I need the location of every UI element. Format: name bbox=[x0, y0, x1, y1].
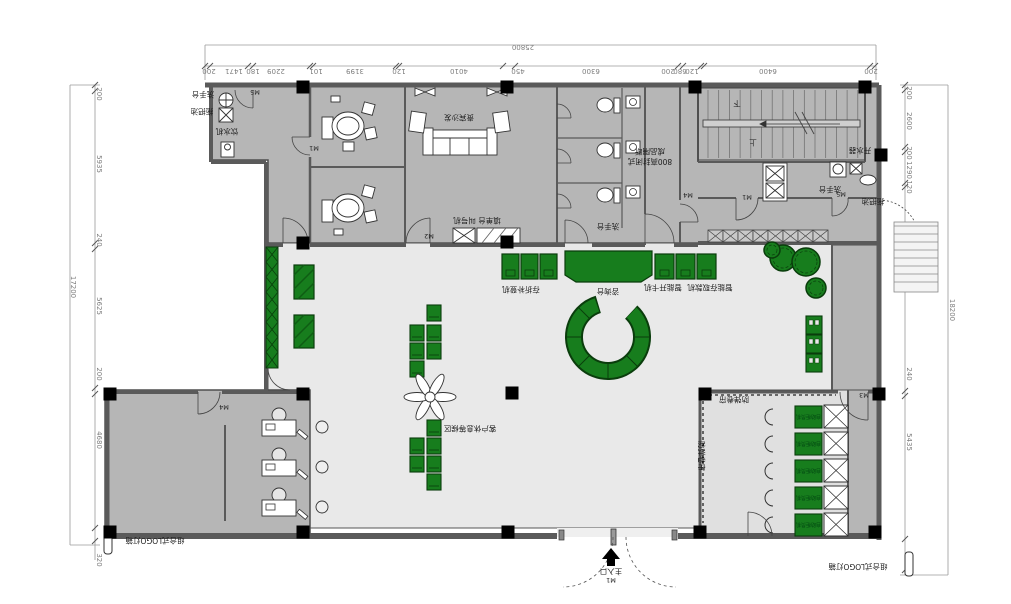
toilet-tank bbox=[614, 188, 620, 203]
dim-label: 4010 bbox=[450, 67, 468, 75]
dim-label: 101 bbox=[309, 67, 322, 75]
label-logo-right: 组合式LOGO灯箱 bbox=[828, 562, 888, 572]
exterior-stair bbox=[894, 222, 938, 292]
wall-machine bbox=[806, 354, 822, 372]
customer-stool bbox=[316, 461, 328, 473]
dim-label: 320 bbox=[95, 553, 103, 566]
service-counter bbox=[565, 251, 652, 282]
label-atm: 自助柜员机 bbox=[796, 521, 821, 528]
label-shutter-left: 防弹卷帘 bbox=[697, 441, 707, 471]
lattice-window bbox=[708, 230, 828, 242]
label-mop-pool-tl: 拖把池 bbox=[190, 107, 213, 117]
passbook-machines bbox=[502, 254, 557, 279]
logo-lightbox-icon bbox=[905, 552, 913, 576]
main-entrance bbox=[559, 529, 677, 587]
toilet-tank bbox=[614, 143, 620, 158]
column bbox=[506, 387, 519, 400]
right-wall-machines bbox=[806, 316, 822, 372]
dim-total-right: 18200 bbox=[948, 299, 956, 321]
door-tag-M1: M1 bbox=[606, 576, 616, 584]
smart-machine bbox=[676, 254, 695, 279]
label-passbook: 存折补登机 bbox=[502, 285, 540, 295]
floor-plan-canvas: 2001471180220910131991204010450630020068… bbox=[0, 0, 1011, 604]
door-tag-M1: M1 bbox=[309, 144, 319, 152]
green-mat bbox=[294, 315, 314, 348]
machine-screen bbox=[809, 358, 813, 363]
waiting-chair bbox=[410, 325, 424, 341]
dim-label: 450 bbox=[511, 67, 524, 75]
dim-label: 5935 bbox=[95, 155, 103, 173]
column bbox=[869, 526, 882, 539]
door-tag-M5: M5 bbox=[836, 190, 846, 198]
smart-machines bbox=[655, 254, 716, 279]
wall-machine bbox=[806, 335, 822, 353]
green-mat bbox=[294, 265, 314, 299]
tree-icon bbox=[792, 248, 820, 276]
label-smart-cash: 智能存取款机 bbox=[687, 283, 732, 293]
door-tag-M2: M2 bbox=[424, 232, 434, 240]
waiting-chair bbox=[410, 456, 424, 472]
machine-screen bbox=[809, 339, 813, 344]
machine-screen bbox=[815, 358, 819, 363]
phone-icon bbox=[266, 504, 275, 510]
waiting-chair bbox=[427, 420, 441, 436]
magazine-rack bbox=[266, 247, 278, 368]
dim-total-top: 25800 bbox=[512, 43, 534, 51]
column bbox=[699, 388, 712, 401]
label-sofa-room: 贵宾沙发 bbox=[444, 113, 474, 123]
machine-screen bbox=[809, 320, 813, 325]
column bbox=[297, 237, 310, 250]
smart-machine bbox=[655, 254, 674, 279]
dim-label: 200 bbox=[95, 87, 103, 100]
column bbox=[859, 81, 872, 94]
label-wc-wash: 洗手台 bbox=[597, 222, 620, 232]
service-desks bbox=[262, 408, 328, 519]
column bbox=[694, 526, 707, 539]
column bbox=[104, 388, 117, 401]
waiting-chair bbox=[410, 438, 424, 454]
label-stair-up: 上 bbox=[749, 138, 757, 147]
door-tag-M3: M3 bbox=[859, 391, 869, 399]
label-kitchen-mop: 拖把池 bbox=[861, 197, 884, 207]
toilet-tank bbox=[614, 98, 620, 113]
dim-label: 6400 bbox=[759, 67, 777, 75]
sink-icon bbox=[626, 186, 640, 198]
dim-label: 120 bbox=[685, 67, 698, 75]
floor-plan-drawing: 2001471180220910131991204010450630020068… bbox=[0, 0, 1011, 604]
sink-icon bbox=[626, 96, 640, 108]
label-entrance: 主入口 bbox=[600, 567, 623, 577]
label-waiting-area: 客户休息等候区 bbox=[443, 424, 496, 434]
dim-label: 3199 bbox=[346, 67, 364, 75]
entrance-floor bbox=[557, 528, 678, 537]
mop-pool-icon bbox=[860, 175, 876, 185]
dim-label: 200 bbox=[864, 67, 877, 75]
dim-label: 5435 bbox=[905, 433, 913, 451]
dim-label: 200 bbox=[905, 86, 913, 99]
dim-label: 6300 bbox=[582, 67, 600, 75]
label-form-desk: 填单台 叫号机 bbox=[453, 216, 501, 226]
dim-label: 120 bbox=[905, 180, 913, 193]
column bbox=[104, 526, 117, 539]
waiting-chair bbox=[427, 438, 441, 454]
door-tag-M4: M4 bbox=[683, 191, 693, 199]
column bbox=[297, 81, 310, 94]
phone-icon bbox=[334, 229, 343, 235]
passbook-machine bbox=[502, 254, 519, 279]
passbook-machine bbox=[521, 254, 538, 279]
label-counter: 咨询台 bbox=[597, 287, 620, 297]
waiting-chair bbox=[427, 325, 441, 341]
label-boiler: 开水器 bbox=[848, 146, 871, 156]
column bbox=[689, 81, 702, 94]
dim-total-left: 17200 bbox=[69, 276, 77, 298]
smart-machine bbox=[697, 254, 716, 279]
phone-icon bbox=[331, 96, 340, 102]
machine-screen bbox=[815, 339, 819, 344]
label-stair-down: 下 bbox=[733, 99, 741, 108]
toilet-icon bbox=[597, 143, 613, 157]
dim-label: 2600 bbox=[905, 112, 913, 130]
atm-corridor bbox=[848, 390, 878, 536]
entrance-arrow-icon bbox=[602, 548, 620, 566]
label-logo-left: 组合式LOGO灯箱 bbox=[125, 536, 185, 546]
machine-screen bbox=[815, 320, 819, 325]
toilet-icon bbox=[597, 98, 613, 112]
label-washbasin-tl: 洗手台 bbox=[192, 90, 215, 100]
dim-label: 200 bbox=[202, 67, 215, 75]
label-shutter-top: 防弹卷帘 bbox=[719, 395, 749, 405]
dim-label: 1290 bbox=[905, 161, 913, 179]
tree-icon bbox=[764, 242, 780, 258]
label-wc-partition-1: 800高封闭式 bbox=[627, 157, 672, 167]
label-atm: 自助柜员机 bbox=[796, 494, 821, 501]
dim-label: 4680 bbox=[95, 431, 103, 449]
east-corridor bbox=[832, 245, 878, 390]
dim-label: 200 bbox=[905, 146, 913, 159]
waiting-chair bbox=[427, 343, 441, 359]
customer-stool bbox=[316, 421, 328, 433]
waiting-chair bbox=[427, 474, 441, 490]
exterior-stair-frame bbox=[894, 222, 938, 292]
door-tag-M1: M1 bbox=[742, 193, 752, 201]
dim-label: 2209 bbox=[267, 67, 285, 75]
waiting-chair bbox=[427, 456, 441, 472]
column bbox=[873, 388, 886, 401]
label-wc-partition-2: 成品隔断 bbox=[635, 147, 665, 157]
dim-label: 120 bbox=[392, 67, 405, 75]
dim-label: 1471 bbox=[225, 67, 243, 75]
phone-icon bbox=[266, 424, 275, 430]
label-atm: 自助柜员机 bbox=[796, 440, 821, 447]
waiting-chair bbox=[410, 343, 424, 359]
dim-label: 200 bbox=[661, 67, 674, 75]
door-tag-M4: M4 bbox=[219, 403, 229, 411]
customer-stool bbox=[316, 501, 328, 513]
column bbox=[501, 236, 514, 249]
column bbox=[502, 526, 515, 539]
label-atm: 自助柜员机 bbox=[796, 413, 821, 420]
wall-machine bbox=[806, 316, 822, 334]
phone-icon bbox=[266, 464, 275, 470]
waiting-chair bbox=[427, 305, 441, 321]
dim-label: 240 bbox=[905, 367, 913, 380]
column bbox=[875, 149, 888, 162]
toilet-icon bbox=[597, 188, 613, 202]
dim-label: 240 bbox=[95, 233, 103, 246]
dim-label: 180 bbox=[246, 67, 259, 75]
label-water-dispenser: 饮水机 bbox=[215, 127, 238, 137]
dim-label: 200 bbox=[95, 367, 103, 380]
dim-label: 680 bbox=[673, 67, 686, 75]
passbook-machine bbox=[540, 254, 557, 279]
label-atm: 自助柜员机 bbox=[796, 467, 821, 474]
column bbox=[297, 388, 310, 401]
label-smart-card: 智能开卡机 bbox=[644, 283, 682, 293]
column bbox=[297, 526, 310, 539]
door-tag-M5: M5 bbox=[250, 88, 260, 96]
dim-label: 5625 bbox=[95, 297, 103, 315]
column bbox=[501, 81, 514, 94]
